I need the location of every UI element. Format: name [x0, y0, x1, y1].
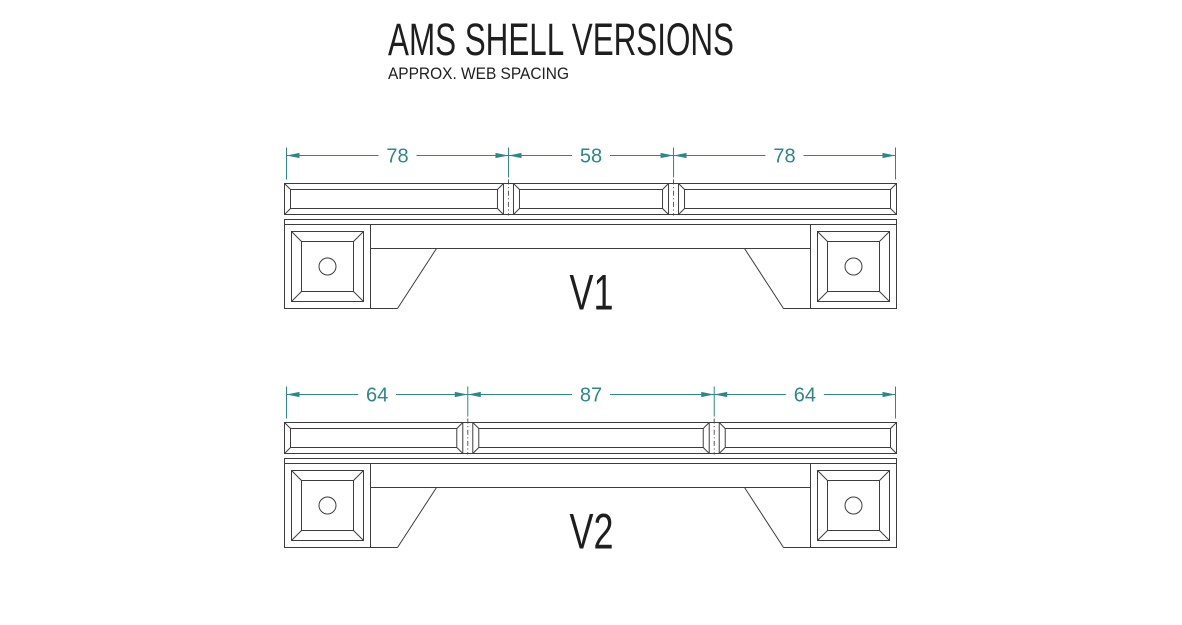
panel-inner — [725, 429, 890, 448]
drawing-title: AMS SHELL VERSIONS — [388, 14, 734, 65]
block-miter — [292, 471, 302, 481]
panel-inner — [479, 429, 703, 448]
dimension-arrow — [468, 392, 481, 397]
block-miter — [880, 232, 890, 242]
panel-inner — [291, 190, 498, 209]
block-miter — [292, 292, 302, 302]
mounting-hole — [319, 497, 336, 514]
dimension-value: 78 — [773, 146, 795, 168]
bevel-miter — [891, 423, 897, 429]
bevel-miter — [891, 448, 897, 454]
gusset-diagonal — [398, 488, 437, 548]
dimension-arrow — [714, 392, 727, 397]
end-block-panel — [302, 242, 354, 292]
end-block-panel — [828, 481, 880, 531]
bevel-miter — [679, 209, 685, 215]
dimension-arrow — [883, 153, 896, 158]
drawing-subtitle: APPROX. WEB SPACING — [388, 64, 569, 83]
bevel-miter — [703, 448, 709, 454]
panel-inner — [519, 190, 662, 209]
dimension-arrow — [495, 153, 508, 158]
block-miter — [880, 292, 890, 302]
block-miter — [818, 471, 828, 481]
bevel-miter — [285, 423, 291, 429]
bevel-miter — [719, 448, 725, 454]
bevel-miter — [513, 184, 519, 190]
block-miter — [354, 471, 364, 481]
block-miter — [354, 232, 364, 242]
bevel-miter — [513, 209, 519, 215]
mounting-hole — [319, 258, 336, 275]
dimension-value: 87 — [580, 385, 602, 407]
bevel-miter — [473, 448, 479, 454]
bevel-miter — [663, 184, 669, 190]
dimension-arrow — [508, 153, 521, 158]
gusset-diagonal — [745, 249, 784, 309]
bevel-miter — [473, 423, 479, 429]
bevel-miter — [497, 209, 503, 215]
dimension-row: 648764 — [287, 385, 896, 455]
drawing-canvas: AMS SHELL VERSIONS APPROX. WEB SPACING 7… — [0, 0, 1182, 625]
panel-inner — [685, 190, 891, 209]
version-label: V2 — [570, 504, 614, 560]
end-block-panel — [828, 242, 880, 292]
block-miter — [880, 531, 890, 541]
mounting-hole — [845, 258, 862, 275]
dimension-arrow — [701, 392, 714, 397]
shell-bar — [285, 184, 897, 215]
dimension-arrow — [883, 392, 896, 397]
bevel-miter — [891, 184, 897, 190]
base-strip — [285, 459, 897, 464]
block-miter — [354, 531, 364, 541]
versions-layer: 785878V1648764V2 — [285, 146, 897, 560]
dimension-arrow — [287, 392, 300, 397]
block-miter — [818, 232, 828, 242]
gusset-diagonal — [398, 249, 437, 309]
bevel-miter — [457, 448, 463, 454]
dimension-value: 64 — [366, 385, 388, 407]
panel-inner — [291, 429, 457, 448]
shell-versions-technical-drawing: AMS SHELL VERSIONS APPROX. WEB SPACING 7… — [0, 0, 1182, 625]
bevel-miter — [285, 209, 291, 215]
bevel-miter — [679, 184, 685, 190]
bevel-miter — [663, 209, 669, 215]
base-strip — [285, 220, 897, 225]
bevel-miter — [497, 184, 503, 190]
bevel-miter — [457, 423, 463, 429]
version-label: V1 — [570, 265, 614, 321]
dimension-value: 58 — [580, 146, 602, 168]
block-miter — [818, 531, 828, 541]
bevel-miter — [891, 209, 897, 215]
dimension-arrow — [674, 153, 687, 158]
block-miter — [818, 292, 828, 302]
bevel-miter — [719, 423, 725, 429]
dimension-arrow — [661, 153, 674, 158]
block-miter — [880, 471, 890, 481]
version-v2-view: 648764V2 — [285, 385, 897, 560]
block-miter — [292, 531, 302, 541]
version-v1-view: 785878V1 — [285, 146, 897, 321]
bevel-miter — [703, 423, 709, 429]
block-miter — [354, 292, 364, 302]
dimension-arrow — [287, 153, 300, 158]
end-block-panel — [302, 481, 354, 531]
mounting-hole — [845, 497, 862, 514]
dimension-value: 64 — [794, 385, 816, 407]
bevel-miter — [285, 184, 291, 190]
gusset-diagonal — [745, 488, 784, 548]
bevel-miter — [285, 448, 291, 454]
dimension-row: 785878 — [287, 146, 896, 216]
dimension-value: 78 — [386, 146, 408, 168]
dimension-arrow — [455, 392, 468, 397]
shell-bar — [285, 423, 897, 454]
block-miter — [292, 232, 302, 242]
